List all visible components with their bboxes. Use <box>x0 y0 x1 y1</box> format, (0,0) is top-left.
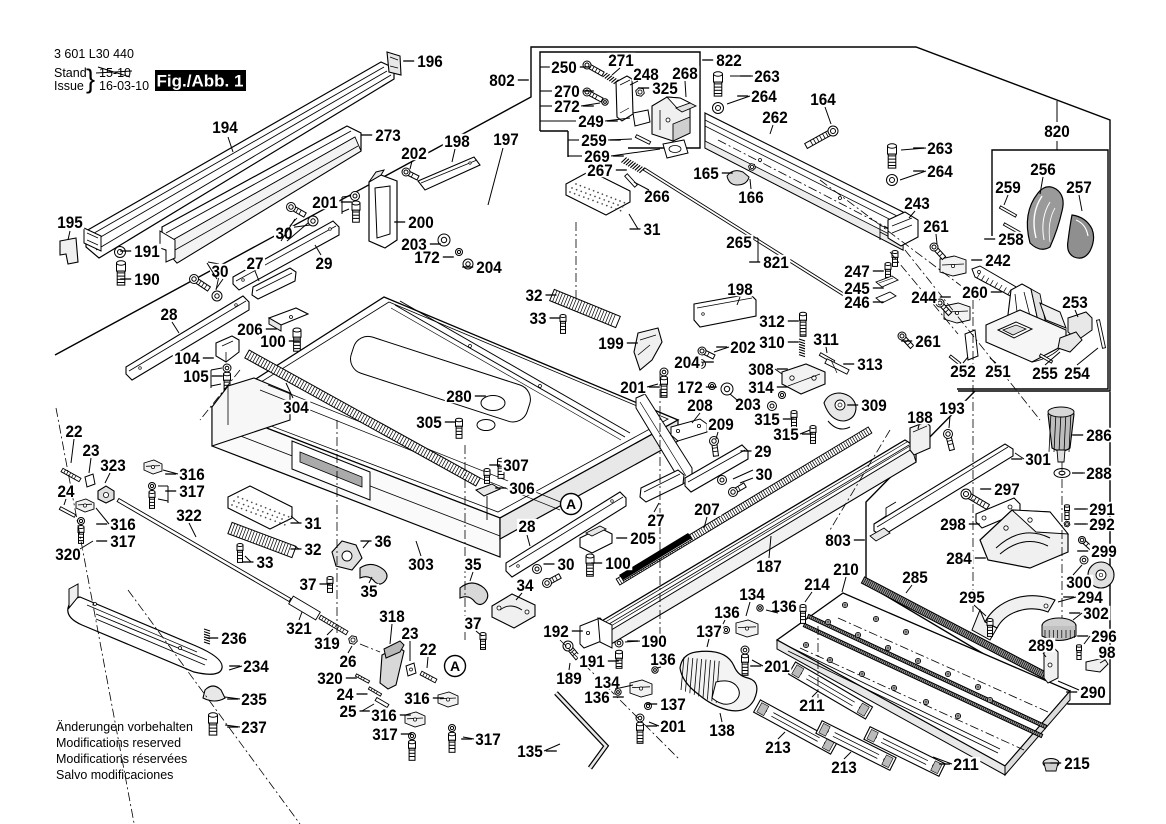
svg-text:28: 28 <box>519 517 536 536</box>
svg-text:325: 325 <box>652 79 678 98</box>
svg-text:104: 104 <box>174 349 200 368</box>
svg-text:23: 23 <box>83 441 100 460</box>
svg-text:243: 243 <box>904 194 930 213</box>
svg-text:250: 250 <box>551 58 577 77</box>
svg-text:30: 30 <box>558 555 575 574</box>
svg-text:165: 165 <box>693 164 719 183</box>
svg-text:288: 288 <box>1086 464 1112 483</box>
svg-text:255: 255 <box>1032 364 1058 383</box>
svg-text:137: 137 <box>696 622 722 641</box>
svg-text:235: 235 <box>241 690 267 709</box>
svg-text:242: 242 <box>985 251 1011 270</box>
svg-text:22: 22 <box>66 422 83 441</box>
svg-text:187: 187 <box>756 557 782 576</box>
svg-text:297: 297 <box>994 480 1020 499</box>
svg-text:315: 315 <box>773 425 799 444</box>
svg-text:265: 265 <box>726 233 752 252</box>
svg-text:285: 285 <box>902 568 928 587</box>
svg-text:257: 257 <box>1066 178 1092 197</box>
svg-text:317: 317 <box>475 730 501 749</box>
svg-text:136: 136 <box>650 650 676 669</box>
svg-text:209: 209 <box>708 415 734 434</box>
svg-text:32: 32 <box>305 540 322 559</box>
svg-text:164: 164 <box>810 90 836 109</box>
svg-text:29: 29 <box>755 442 772 461</box>
svg-text:234: 234 <box>243 657 269 676</box>
svg-text:213: 213 <box>765 738 791 757</box>
svg-text:320: 320 <box>55 545 81 564</box>
svg-text:322: 322 <box>176 506 202 525</box>
svg-text:201: 201 <box>764 657 790 676</box>
svg-text:261: 261 <box>915 332 941 351</box>
svg-text:16-03-10: 16-03-10 <box>99 79 149 93</box>
svg-text:316: 316 <box>371 706 397 725</box>
svg-text:259: 259 <box>995 178 1021 197</box>
svg-text:30: 30 <box>756 465 773 484</box>
svg-text:31: 31 <box>644 220 661 239</box>
svg-text:30: 30 <box>212 262 229 281</box>
svg-text:306: 306 <box>509 479 535 498</box>
svg-text:134: 134 <box>739 585 765 604</box>
svg-text:Issue: Issue <box>54 79 84 93</box>
svg-text:Stand: Stand <box>54 66 87 80</box>
svg-text:298: 298 <box>940 515 966 534</box>
svg-text:27: 27 <box>247 254 264 273</box>
svg-text:100: 100 <box>605 554 631 573</box>
svg-text:261: 261 <box>923 217 949 236</box>
svg-text:295: 295 <box>959 588 985 607</box>
svg-text:309: 309 <box>861 396 887 415</box>
svg-text:312: 312 <box>759 312 785 331</box>
svg-text:264: 264 <box>751 87 777 106</box>
svg-text:256: 256 <box>1030 160 1056 179</box>
svg-text:205: 205 <box>630 529 656 548</box>
svg-text:24: 24 <box>58 482 75 501</box>
svg-text:Salvo modificaciones: Salvo modificaciones <box>56 768 173 782</box>
svg-text:253: 253 <box>1062 293 1088 312</box>
svg-text:189: 189 <box>556 669 582 688</box>
svg-text:191: 191 <box>134 242 160 261</box>
svg-text:29: 29 <box>316 254 333 273</box>
svg-text:194: 194 <box>212 118 238 137</box>
svg-text:199: 199 <box>598 334 624 353</box>
svg-text:197: 197 <box>493 130 519 149</box>
svg-text:305: 305 <box>416 413 442 432</box>
svg-text:98: 98 <box>1099 643 1116 662</box>
svg-text:302: 302 <box>1083 604 1109 623</box>
svg-text:202: 202 <box>401 144 427 163</box>
svg-text:317: 317 <box>372 725 398 744</box>
svg-text:201: 201 <box>312 193 338 212</box>
svg-text:211: 211 <box>953 755 979 774</box>
svg-text:820: 820 <box>1044 122 1070 141</box>
svg-text:23: 23 <box>402 624 419 643</box>
svg-text:246: 246 <box>844 293 870 312</box>
svg-text:192: 192 <box>543 622 569 641</box>
svg-text:193: 193 <box>939 399 965 418</box>
svg-text:207: 207 <box>694 500 720 519</box>
svg-text:33: 33 <box>530 309 547 328</box>
svg-text:}: } <box>86 64 95 94</box>
svg-text:31: 31 <box>305 514 322 533</box>
svg-text:313: 313 <box>857 355 883 374</box>
svg-text:311: 311 <box>813 330 839 349</box>
svg-text:319: 319 <box>314 634 340 653</box>
svg-text:208: 208 <box>687 396 713 415</box>
svg-text:100: 100 <box>260 332 286 351</box>
svg-text:Fig./Abb. 1: Fig./Abb. 1 <box>157 72 244 91</box>
svg-text:289: 289 <box>1028 636 1054 655</box>
svg-text:263: 263 <box>927 139 953 158</box>
svg-text:196: 196 <box>417 52 443 71</box>
svg-text:200: 200 <box>408 213 434 232</box>
svg-text:284: 284 <box>946 549 972 568</box>
svg-text:299: 299 <box>1091 542 1117 561</box>
svg-text:172: 172 <box>677 378 703 397</box>
svg-text:191: 191 <box>579 652 605 671</box>
svg-text:280: 280 <box>446 387 472 406</box>
svg-text:198: 198 <box>444 132 470 151</box>
svg-text:304: 304 <box>283 398 309 417</box>
svg-text:35: 35 <box>465 555 482 574</box>
svg-text:264: 264 <box>927 162 953 181</box>
svg-text:202: 202 <box>730 338 756 357</box>
svg-text:190: 190 <box>641 632 667 651</box>
svg-text:166: 166 <box>738 188 764 207</box>
svg-text:201: 201 <box>620 378 646 397</box>
svg-text:316: 316 <box>404 689 430 708</box>
svg-text:822: 822 <box>716 51 742 70</box>
svg-text:214: 214 <box>804 575 830 594</box>
svg-text:258: 258 <box>998 230 1024 249</box>
svg-text:36: 36 <box>375 532 392 551</box>
svg-text:136: 136 <box>714 603 740 622</box>
svg-text:254: 254 <box>1064 364 1090 383</box>
svg-text:35: 35 <box>361 582 378 601</box>
svg-text:204: 204 <box>674 353 700 372</box>
svg-text:308: 308 <box>748 360 774 379</box>
svg-text:803: 803 <box>825 531 851 550</box>
svg-text:33: 33 <box>257 553 274 572</box>
svg-text:22: 22 <box>420 640 437 659</box>
svg-text:317: 317 <box>179 482 205 501</box>
svg-text:3 601 L30 440: 3 601 L30 440 <box>54 47 134 61</box>
svg-text:34: 34 <box>517 576 534 595</box>
svg-text:136: 136 <box>771 597 797 616</box>
svg-text:A: A <box>450 658 460 674</box>
svg-text:190: 190 <box>134 270 160 289</box>
svg-text:28: 28 <box>161 305 178 324</box>
svg-text:260: 260 <box>962 283 988 302</box>
svg-text:802: 802 <box>489 71 515 90</box>
svg-text:271: 271 <box>608 51 634 70</box>
svg-text:188: 188 <box>907 408 933 427</box>
svg-text:211: 211 <box>799 696 825 715</box>
svg-text:236: 236 <box>221 629 247 648</box>
svg-text:138: 138 <box>709 721 735 740</box>
svg-text:25: 25 <box>340 702 357 721</box>
svg-text:210: 210 <box>833 560 859 579</box>
svg-text:37: 37 <box>300 575 317 594</box>
svg-text:310: 310 <box>759 333 785 352</box>
svg-text:272: 272 <box>554 97 580 116</box>
svg-text:290: 290 <box>1080 683 1106 702</box>
svg-text:263: 263 <box>754 67 780 86</box>
svg-text:252: 252 <box>950 362 976 381</box>
svg-text:301: 301 <box>1025 450 1051 469</box>
svg-text:198: 198 <box>727 280 753 299</box>
svg-text:307: 307 <box>503 456 529 475</box>
svg-text:Änderungen vorbehalten: Änderungen vorbehalten <box>56 720 193 734</box>
svg-text:237: 237 <box>241 718 267 737</box>
svg-text:292: 292 <box>1089 515 1115 534</box>
svg-text:286: 286 <box>1086 426 1112 445</box>
svg-text:27: 27 <box>648 511 665 530</box>
svg-text:249: 249 <box>578 112 604 131</box>
svg-text:267: 267 <box>587 161 613 180</box>
svg-text:215: 215 <box>1064 754 1090 773</box>
svg-text:32: 32 <box>526 286 543 305</box>
svg-text:317: 317 <box>110 532 136 551</box>
svg-text:251: 251 <box>985 362 1011 381</box>
svg-text:137: 137 <box>660 695 686 714</box>
svg-text:172: 172 <box>414 248 440 267</box>
svg-text:A: A <box>566 496 576 512</box>
svg-text:273: 273 <box>375 126 401 145</box>
svg-text:136: 136 <box>584 688 610 707</box>
svg-text:Modifications reserved: Modifications reserved <box>56 736 181 750</box>
svg-text:303: 303 <box>408 555 434 574</box>
svg-text:262: 262 <box>762 108 788 127</box>
svg-text:201: 201 <box>660 717 686 736</box>
svg-text:323: 323 <box>100 456 126 475</box>
svg-text:821: 821 <box>763 253 789 272</box>
svg-text:204: 204 <box>476 258 502 277</box>
svg-text:213: 213 <box>831 758 857 777</box>
svg-text:135: 135 <box>517 742 543 761</box>
svg-text:195: 195 <box>57 213 83 232</box>
svg-text:321: 321 <box>286 619 312 638</box>
svg-text:244: 244 <box>911 288 937 307</box>
svg-text:105: 105 <box>183 367 209 386</box>
svg-text:37: 37 <box>465 614 482 633</box>
